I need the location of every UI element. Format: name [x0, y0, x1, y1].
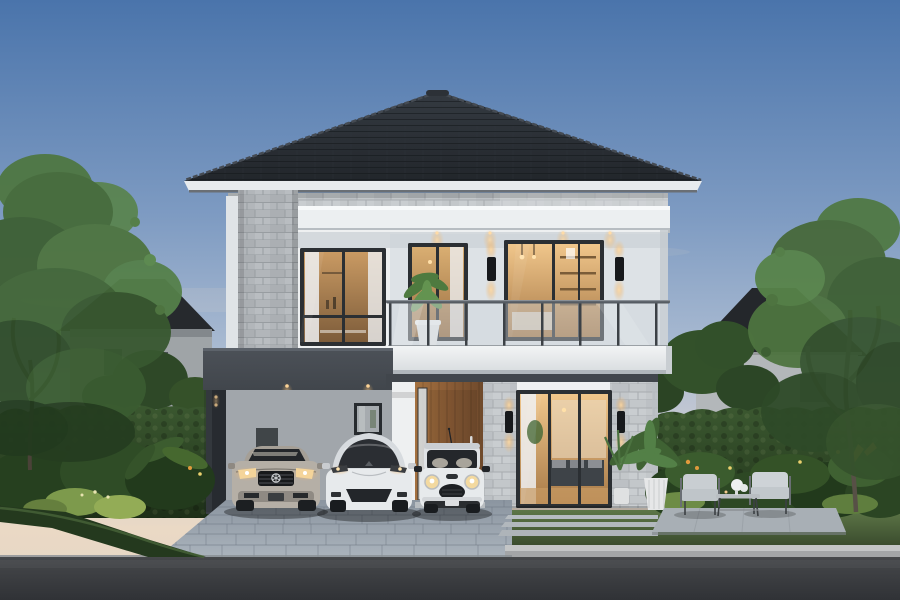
- stone-corner-column: [238, 190, 298, 352]
- living-room-glass-slider: [516, 390, 612, 508]
- upper-left-window: [300, 248, 386, 346]
- balcony-glass-railing: [386, 300, 670, 348]
- cornice-ledge: [234, 206, 670, 233]
- architectural-rendering: [0, 0, 900, 600]
- balcony-fascia: [386, 346, 672, 374]
- fascia-shadow: [386, 370, 672, 374]
- fascia-endcap: [666, 346, 672, 374]
- asphalt-road: [0, 557, 900, 600]
- left-edge-wall: [226, 196, 238, 352]
- scene-canvas: [0, 0, 900, 600]
- stepping-stones: [498, 515, 658, 536]
